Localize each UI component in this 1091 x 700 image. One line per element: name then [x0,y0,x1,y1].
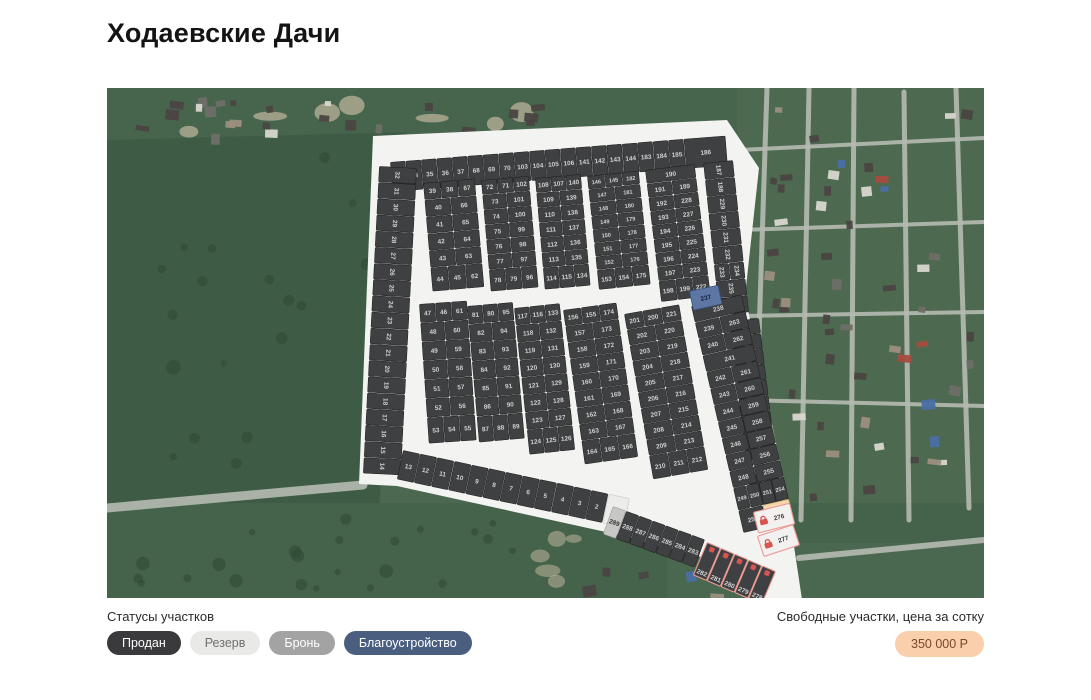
plot-221[interactable]: 221 [661,305,681,323]
plot-231[interactable]: 231 [711,228,742,247]
svg-text:81: 81 [472,312,480,320]
plot-28[interactable]: 28 [375,231,413,248]
plot-32[interactable]: 32 [379,166,417,183]
svg-text:227: 227 [683,211,695,219]
plot-147[interactable]: 147 [589,187,615,202]
plot-53[interactable]: 53 [427,417,444,443]
plot-93[interactable]: 93 [494,339,518,359]
plot-50[interactable]: 50 [423,360,447,380]
plot-132[interactable]: 132 [539,321,563,340]
legend-chip-booked[interactable]: Бронь [269,631,335,655]
svg-text:109: 109 [543,196,555,204]
plot-72[interactable]: 72 [481,179,497,194]
plot-55[interactable]: 55 [459,415,476,441]
plot-136[interactable]: 136 [564,234,587,250]
svg-text:80: 80 [487,310,495,318]
plot-228[interactable]: 228 [674,192,700,208]
plot-118[interactable]: 118 [516,323,540,342]
svg-text:57: 57 [457,384,465,392]
svg-text:38: 38 [446,186,454,194]
plot-56[interactable]: 56 [450,396,474,416]
svg-text:62: 62 [471,273,479,281]
plot-226[interactable]: 226 [677,220,703,236]
svg-text:152: 152 [604,259,614,266]
svg-text:114: 114 [546,275,557,283]
plot-164[interactable]: 164 [582,439,602,464]
plot-120[interactable]: 120 [520,358,544,377]
svg-text:122: 122 [530,399,542,407]
plot-16[interactable]: 16 [365,425,403,442]
plot-144[interactable]: 144 [622,143,639,173]
svg-text:41: 41 [436,221,444,229]
svg-text:120: 120 [526,364,538,372]
svg-text:191: 191 [654,186,666,194]
plot-177[interactable]: 177 [620,238,646,253]
plot-197[interactable]: 197 [657,265,683,281]
svg-text:25: 25 [387,285,394,293]
plot-23[interactable]: 23 [371,312,409,329]
plot-235[interactable]: 235 [716,279,747,298]
plot-41[interactable]: 41 [426,215,453,233]
svg-text:83: 83 [479,348,487,356]
plot-145[interactable]: 145 [605,173,623,187]
plot-112[interactable]: 112 [541,236,564,252]
plot-196[interactable]: 196 [656,251,682,267]
legend-chip-improvement[interactable]: Благоустройство [344,631,472,655]
plot-59[interactable]: 59 [446,339,470,359]
plot-160[interactable]: 160 [573,372,601,391]
plot-156[interactable]: 156 [563,308,582,326]
plot-110[interactable]: 110 [538,206,561,222]
plot-142[interactable]: 142 [591,145,608,175]
plot-193[interactable]: 193 [651,209,677,225]
plot-25[interactable]: 25 [373,280,411,297]
plot-171[interactable]: 171 [597,352,625,371]
plot-167[interactable]: 167 [606,417,634,436]
plot-104[interactable]: 104 [530,150,547,180]
plot-188[interactable]: 188 [705,177,736,196]
plot-113[interactable]: 113 [542,251,565,267]
svg-text:105: 105 [548,161,560,169]
plot-162[interactable]: 162 [577,405,605,424]
plot-90[interactable]: 90 [498,395,522,415]
svg-text:31: 31 [392,188,399,196]
svg-text:36: 36 [442,170,450,178]
svg-text:148: 148 [599,206,609,213]
plot-182[interactable]: 182 [622,171,640,185]
plot-195[interactable]: 195 [654,237,680,253]
plot-52[interactable]: 52 [426,398,450,418]
plot-114[interactable]: 114 [543,267,559,289]
plot-82[interactable]: 82 [469,323,493,343]
svg-text:185: 185 [671,151,683,159]
plot-17[interactable]: 17 [366,409,404,426]
plot-71[interactable]: 71 [497,178,513,193]
plot-14[interactable]: 14 [363,458,401,475]
plot-163[interactable]: 163 [580,421,608,440]
plot-151[interactable]: 151 [594,241,620,256]
svg-text:70: 70 [503,165,511,173]
svg-text:192: 192 [656,200,668,208]
plot-146[interactable]: 146 [587,175,605,189]
svg-text:91: 91 [505,383,513,391]
plot-229[interactable]: 229 [707,194,738,213]
svg-text:54: 54 [448,426,456,434]
plot-94[interactable]: 94 [492,321,516,341]
plot-191[interactable]: 191 [647,181,673,197]
svg-text:140: 140 [568,179,580,187]
plot-115[interactable]: 115 [559,265,575,287]
svg-text:73: 73 [491,198,499,206]
plot-95[interactable]: 95 [498,302,514,321]
plot-62[interactable]: 62 [465,264,483,289]
plot-85[interactable]: 85 [474,378,498,398]
plot-24[interactable]: 24 [372,296,410,313]
plot-107[interactable]: 107 [551,176,567,191]
svg-text:69: 69 [488,166,496,174]
svg-text:71: 71 [502,182,510,190]
plot-51[interactable]: 51 [425,379,449,399]
svg-text:106: 106 [563,160,575,168]
plot-185[interactable]: 185 [669,139,686,169]
svg-text:137: 137 [568,224,580,232]
plot-166[interactable]: 166 [617,434,637,459]
svg-text:87: 87 [482,426,490,434]
plot-159[interactable]: 159 [570,356,598,375]
plot-157[interactable]: 157 [566,323,594,342]
plot-121[interactable]: 121 [522,376,546,395]
plot-98[interactable]: 98 [511,236,535,252]
plot-124[interactable]: 124 [527,429,544,455]
svg-text:55: 55 [464,425,472,433]
svg-text:139: 139 [566,194,578,202]
plot-194[interactable]: 194 [652,223,678,239]
plot-96[interactable]: 96 [521,266,538,288]
svg-text:28: 28 [390,236,397,244]
svg-text:84: 84 [480,366,488,374]
svg-text:154: 154 [618,274,630,282]
plot-233[interactable]: 233 [714,263,730,281]
plot-map: 3334353637686970103104105106141142143144… [107,88,984,598]
plot-135[interactable]: 135 [565,249,588,265]
plot-106[interactable]: 106 [560,148,577,178]
plot-84[interactable]: 84 [472,360,496,380]
plot-134[interactable]: 134 [574,264,590,286]
plot-46[interactable]: 46 [435,302,451,321]
svg-text:187: 187 [714,164,722,176]
plot-87[interactable]: 87 [477,416,494,442]
plot-139[interactable]: 139 [560,189,583,205]
plot-176[interactable]: 176 [622,252,648,267]
plot-81[interactable]: 81 [467,305,483,324]
plot-123[interactable]: 123 [525,410,549,429]
plot-158[interactable]: 158 [568,339,596,358]
plot-20[interactable]: 20 [368,361,406,378]
plot-140[interactable]: 140 [566,174,582,189]
svg-text:112: 112 [547,241,558,249]
svg-text:75: 75 [494,228,502,236]
plot-187[interactable]: 187 [704,160,735,179]
plot-168[interactable]: 168 [604,401,632,420]
plot-66[interactable]: 66 [451,196,478,214]
plot-42[interactable]: 42 [428,232,455,250]
svg-text:89: 89 [512,423,520,431]
svg-text:178: 178 [627,230,637,237]
svg-text:47: 47 [424,310,432,318]
svg-text:49: 49 [431,348,439,356]
svg-text:100: 100 [515,211,527,219]
plot-75[interactable]: 75 [485,223,509,239]
plot-126[interactable]: 126 [558,425,575,451]
plot-141[interactable]: 141 [576,147,593,177]
plot-125[interactable]: 125 [542,427,559,453]
svg-text:107: 107 [553,180,565,188]
plot-88[interactable]: 88 [492,414,509,440]
plot-19[interactable]: 19 [368,377,406,394]
plot-128[interactable]: 128 [546,391,570,410]
plot-77[interactable]: 77 [488,253,512,269]
plot-100[interactable]: 100 [508,206,532,222]
plot-105[interactable]: 105 [545,149,562,179]
svg-text:23: 23 [385,317,392,325]
plot-201[interactable]: 201 [624,311,644,329]
plot-61[interactable]: 61 [451,301,467,320]
svg-text:79: 79 [510,275,518,283]
plot-63[interactable]: 63 [455,247,482,265]
svg-text:68: 68 [472,167,480,175]
svg-text:224: 224 [688,252,700,260]
plot-60[interactable]: 60 [445,320,469,340]
svg-text:231: 231 [721,232,729,244]
page-title: Ходаевские Дачи [107,18,340,49]
plot-224[interactable]: 224 [680,248,706,264]
plot-161[interactable]: 161 [575,388,603,407]
svg-text:22: 22 [385,333,392,341]
svg-text:147: 147 [597,192,607,199]
plot-133[interactable]: 133 [545,304,561,322]
plot-57[interactable]: 57 [449,377,473,397]
plot-183[interactable]: 183 [638,142,655,172]
plot-122[interactable]: 122 [524,393,548,412]
plot-179[interactable]: 179 [618,211,644,226]
plot-31[interactable]: 31 [378,183,416,200]
plot-152[interactable]: 152 [596,254,622,269]
plot-58[interactable]: 58 [447,358,471,378]
svg-text:98: 98 [519,241,527,249]
svg-text:195: 195 [661,242,673,250]
plot-79[interactable]: 79 [505,267,522,289]
plot-30[interactable]: 30 [377,199,415,216]
price-badge: 350 000 Р [895,631,984,657]
svg-text:116: 116 [532,311,543,319]
svg-text:151: 151 [603,246,613,253]
plot-117[interactable]: 117 [514,307,530,325]
plot-165[interactable]: 165 [600,436,620,461]
plot-153[interactable]: 153 [597,269,615,290]
svg-text:196: 196 [663,255,675,263]
plot-89[interactable]: 89 [508,413,525,439]
legend-chips: ПроданРезервБроньБлагоустройство [107,631,472,655]
svg-text:134: 134 [576,272,588,280]
plot-39[interactable]: 39 [423,182,441,200]
plot-48[interactable]: 48 [421,322,445,342]
svg-text:42: 42 [437,238,445,246]
plot-26[interactable]: 26 [374,264,412,281]
svg-text:197: 197 [665,269,677,277]
svg-text:181: 181 [623,190,633,197]
plot-198[interactable]: 198 [659,280,677,302]
plot-169[interactable]: 169 [602,385,630,404]
plot-138[interactable]: 138 [561,204,584,220]
plot-170[interactable]: 170 [599,368,627,387]
plot-175[interactable]: 175 [632,265,650,286]
plot-178[interactable]: 178 [619,225,645,240]
plot-155[interactable]: 155 [581,305,600,323]
svg-text:76: 76 [495,243,503,251]
svg-text:125: 125 [545,437,557,445]
svg-text:190: 190 [665,171,677,179]
plot-44[interactable]: 44 [431,267,449,292]
plot-137[interactable]: 137 [562,219,585,235]
plot-109[interactable]: 109 [537,191,560,207]
svg-text:45: 45 [454,274,462,282]
svg-text:233: 233 [717,267,725,279]
plot-54[interactable]: 54 [443,416,460,442]
plot-74[interactable]: 74 [484,208,508,224]
svg-text:144: 144 [625,155,637,163]
svg-text:52: 52 [435,404,443,412]
plot-184[interactable]: 184 [653,141,670,171]
plot-40[interactable]: 40 [425,198,452,216]
plot-86[interactable]: 86 [475,397,499,417]
svg-text:37: 37 [457,168,465,176]
plot-29[interactable]: 29 [376,215,414,232]
svg-text:97: 97 [520,256,528,264]
plot-83[interactable]: 83 [471,341,495,361]
svg-text:193: 193 [658,214,670,222]
plot-210[interactable]: 210 [649,453,671,479]
plot-192[interactable]: 192 [649,195,675,211]
svg-text:53: 53 [432,427,440,435]
svg-text:127: 127 [555,414,567,422]
plot-189[interactable]: 189 [672,178,698,194]
plot-127[interactable]: 127 [548,408,572,427]
plot-232[interactable]: 232 [713,245,744,264]
plot-154[interactable]: 154 [615,267,633,288]
plot-15[interactable]: 15 [364,441,402,458]
plot-97[interactable]: 97 [512,251,536,267]
svg-text:66: 66 [460,202,468,210]
svg-text:143: 143 [610,156,622,164]
plot-143[interactable]: 143 [607,144,624,174]
plot-227[interactable]: 227 [675,206,701,222]
plot-92[interactable]: 92 [495,358,519,378]
svg-text:189: 189 [679,183,691,191]
plot-174[interactable]: 174 [599,303,618,321]
svg-text:78: 78 [494,277,502,285]
svg-text:24: 24 [386,301,393,309]
plot-78[interactable]: 78 [489,269,506,291]
plot-223[interactable]: 223 [682,262,708,278]
plot-47[interactable]: 47 [419,303,435,322]
svg-text:67: 67 [463,185,471,193]
plot-73[interactable]: 73 [483,193,507,209]
svg-text:177: 177 [629,243,639,250]
plot-102[interactable]: 102 [513,176,529,191]
plot-180[interactable]: 180 [616,198,642,213]
plot-225[interactable]: 225 [679,234,705,250]
plot-119[interactable]: 119 [518,341,542,360]
svg-text:64: 64 [463,236,471,244]
plot-129[interactable]: 129 [545,373,569,392]
legend-chip-sold[interactable]: Продан [107,631,181,655]
plot-67[interactable]: 67 [458,179,476,197]
plot-18[interactable]: 18 [367,393,405,410]
plot-234[interactable]: 234 [729,262,745,280]
plot-45[interactable]: 45 [448,265,466,290]
svg-text:40: 40 [434,204,442,212]
plot-80[interactable]: 80 [483,304,499,323]
svg-text:15: 15 [379,446,386,454]
plot-212[interactable]: 212 [686,447,708,473]
plot-49[interactable]: 49 [422,341,446,361]
plot-21[interactable]: 21 [369,344,407,361]
svg-text:103: 103 [517,164,529,172]
plot-131[interactable]: 131 [541,338,565,357]
legend-chip-reserve[interactable]: Резерв [190,631,261,655]
svg-text:99: 99 [518,226,526,234]
plot-111[interactable]: 111 [539,221,562,237]
plot-173[interactable]: 173 [592,319,620,338]
plot-230[interactable]: 230 [709,211,740,230]
plot-43[interactable]: 43 [429,249,456,267]
svg-text:199: 199 [679,285,691,293]
plot-38[interactable]: 38 [441,180,459,198]
svg-text:117: 117 [517,313,528,321]
svg-text:26: 26 [388,268,395,276]
svg-text:95: 95 [502,309,510,317]
svg-text:65: 65 [462,219,470,227]
svg-text:90: 90 [506,401,514,409]
svg-text:61: 61 [456,308,464,316]
svg-text:113: 113 [548,256,559,264]
plot-149[interactable]: 149 [592,214,618,229]
plot-108[interactable]: 108 [535,177,551,192]
plot-116[interactable]: 116 [530,305,546,323]
plot-27[interactable]: 27 [374,247,412,264]
svg-text:194: 194 [659,228,671,236]
plot-211[interactable]: 211 [668,450,690,476]
plot-150[interactable]: 150 [593,227,619,242]
svg-text:115: 115 [561,273,572,281]
plot-64[interactable]: 64 [454,230,481,248]
plot-22[interactable]: 22 [370,328,408,345]
svg-text:153: 153 [601,276,613,284]
plot-172[interactable]: 172 [595,336,623,355]
plot-130[interactable]: 130 [543,356,567,375]
plot-76[interactable]: 76 [487,238,511,254]
svg-text:232: 232 [723,249,731,261]
svg-text:180: 180 [624,203,634,210]
plot-99[interactable]: 99 [509,221,533,237]
plot-91[interactable]: 91 [497,376,521,396]
plot-101[interactable]: 101 [507,191,531,207]
plot-200[interactable]: 200 [643,308,663,326]
plot-148[interactable]: 148 [590,201,616,216]
plot-65[interactable]: 65 [452,213,479,231]
svg-text:184: 184 [656,153,668,161]
plot-181[interactable]: 181 [615,184,641,199]
